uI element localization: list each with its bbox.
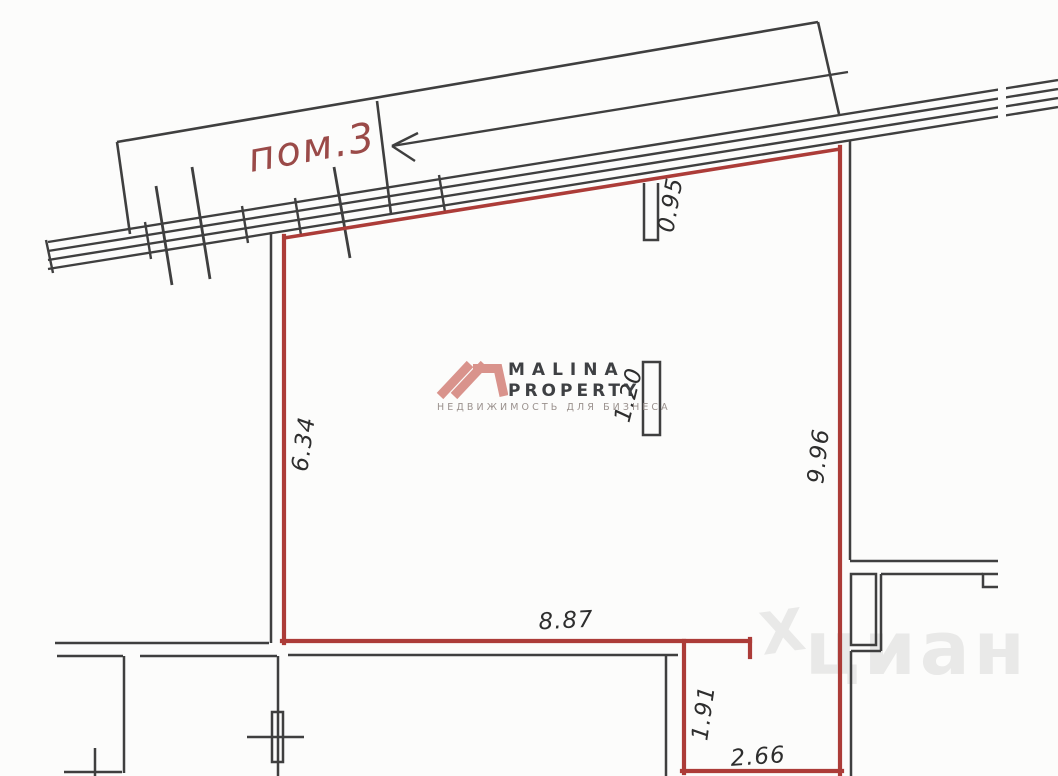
arrow-head-lower bbox=[392, 146, 415, 161]
strip-top-edge bbox=[117, 22, 818, 142]
room-outline-red bbox=[282, 147, 842, 774]
band-line-2 bbox=[48, 89, 1058, 251]
floorplan-page: Х циан bbox=[0, 0, 1058, 776]
wall-tick-1 bbox=[156, 186, 172, 285]
floorplan-drawing: 0.95 1.20 6.34 9.96 8.87 1.91 2.66 пом.3 bbox=[0, 0, 1058, 776]
room-label: пом.3 bbox=[245, 114, 380, 182]
dim-wall-right: 9.96 bbox=[803, 427, 835, 485]
dim-alcove-width: 2.66 bbox=[730, 742, 787, 772]
upper-building-strip bbox=[117, 22, 839, 234]
dim-alcove-height: 1.91 bbox=[687, 684, 720, 742]
strip-right-edge bbox=[818, 22, 839, 114]
band-line-4 bbox=[48, 107, 1058, 269]
adjacent-walls-right bbox=[850, 141, 1001, 776]
room-3-arrow bbox=[392, 72, 848, 161]
band-line-3 bbox=[48, 98, 1058, 260]
dimension-labels: 0.95 1.20 6.34 9.96 8.87 1.91 2.66 пом.3 bbox=[245, 114, 835, 772]
column-rect bbox=[851, 574, 876, 645]
scan-seam bbox=[998, 0, 1006, 620]
exterior-wall-band bbox=[46, 80, 1058, 285]
wall-tick-2 bbox=[192, 167, 210, 279]
red-top-wall bbox=[284, 149, 840, 238]
label-box-left-edge bbox=[117, 142, 130, 234]
dim-wall-bottom: 8.87 bbox=[538, 607, 595, 636]
adjacent-walls-bottom-left bbox=[55, 232, 678, 776]
dim-wall-left: 6.34 bbox=[287, 415, 320, 473]
